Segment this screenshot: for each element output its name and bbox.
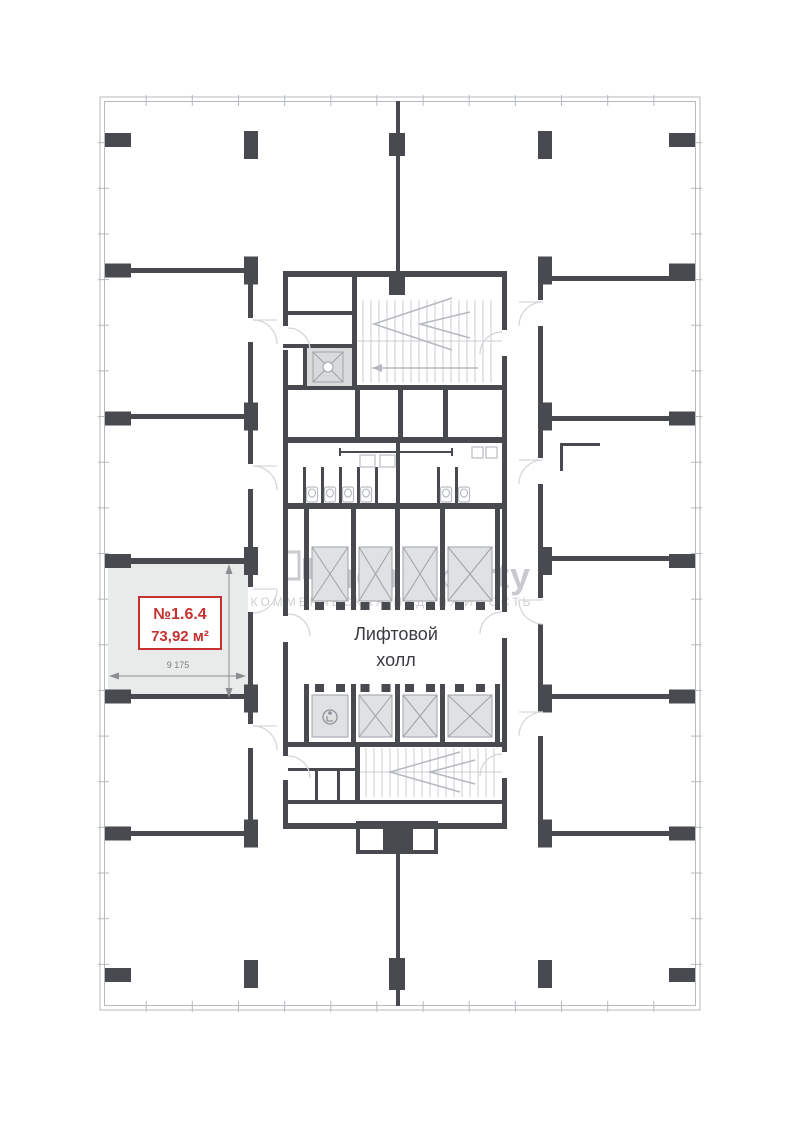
elevator-cell (359, 684, 392, 737)
dim-width-label: 9 175 (167, 660, 190, 670)
sink-icon (472, 447, 483, 458)
sink-icon (360, 455, 375, 467)
floorplan-page: theproperty КОММЕРЧЕСКАЯ НЕДВИЖИМОСТЬ (0, 0, 800, 1131)
elevator-cell (403, 547, 437, 610)
floor-plan-svg: theproperty КОММЕРЧЕСКАЯ НЕДВИЖИМОСТЬ (0, 0, 800, 1131)
service-lift-icon (323, 362, 333, 372)
wc-band (303, 443, 600, 503)
unit-number[interactable]: №1.6.4 (153, 606, 207, 623)
stair-arrow-icon (374, 298, 452, 350)
sink-icon (486, 447, 497, 458)
elevator-cell (359, 547, 392, 610)
elevator-bank-bottom (304, 684, 500, 742)
lift-hall-label-line1: Лифтовой (354, 624, 438, 644)
unit-label[interactable]: №1.6.4 73,92 м² (139, 597, 221, 649)
service-elevator-room (307, 348, 352, 386)
elevator-cell (403, 684, 437, 737)
lift-hall: Лифтовой холл (354, 624, 438, 670)
elevator-cell (448, 684, 492, 737)
stair-arrow-icon (372, 364, 382, 372)
unit-area-value[interactable]: 73,92 м² (151, 628, 209, 645)
elevator-cell (448, 547, 492, 610)
top-stairwell (357, 298, 502, 383)
left-wing-walls (105, 268, 257, 836)
lift-hall-label-line2: холл (376, 650, 415, 670)
elevator-cell (312, 547, 348, 610)
sink-icon (380, 455, 395, 467)
